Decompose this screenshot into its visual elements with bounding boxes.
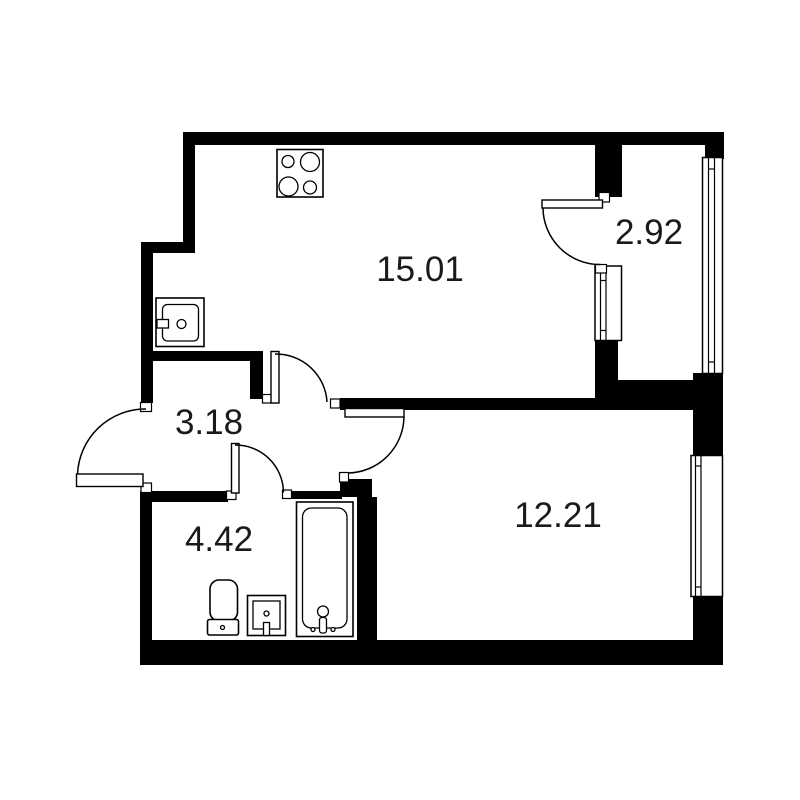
wall-segment-kitchen-hall xyxy=(141,351,253,361)
room-label-kitchen-living: 15.01 xyxy=(376,250,464,289)
room-label-hallway: 3.18 xyxy=(175,403,243,442)
bedroom-door-leaf xyxy=(345,409,404,418)
wall-segment-bedroom-right-upper xyxy=(693,403,723,456)
toilet-icon xyxy=(208,580,239,635)
floor-plan-canvas: 15.01 2.92 3.18 4.42 12.21 xyxy=(0,0,800,800)
balcony-window-sill-jamb xyxy=(596,265,607,274)
balcony-door-leaf xyxy=(542,200,603,208)
bathtub-drain xyxy=(318,606,329,617)
balcony-block-window xyxy=(595,266,622,341)
bathtub-overflow xyxy=(320,618,327,634)
wall-segment-bathroom-right xyxy=(357,497,377,642)
balcony-glazing-window xyxy=(703,158,723,374)
washbasin-pedestal xyxy=(264,623,270,636)
bathroom-door xyxy=(232,444,284,494)
living-room-door-swing-arc xyxy=(275,354,327,402)
stove-burner xyxy=(282,156,294,168)
living-room-door-leaf xyxy=(271,352,279,404)
bedroom-door-swing-arc xyxy=(348,417,404,474)
room-label-balcony: 2.92 xyxy=(615,213,683,252)
bedroom-door-jamb xyxy=(340,473,349,483)
floor-plan-page: 15.01 2.92 3.18 4.42 12.21 xyxy=(0,0,800,800)
balcony-door xyxy=(542,200,603,265)
entrance-door xyxy=(77,409,147,487)
room-label-bedroom: 12.21 xyxy=(514,496,602,535)
stove-burner xyxy=(304,181,317,194)
toilet-bowl xyxy=(210,580,238,621)
toilet-button xyxy=(221,626,225,630)
wall-segment-bathroom-top-right xyxy=(291,491,342,499)
bathtub-tap xyxy=(311,628,315,632)
wall-segment-bottom xyxy=(140,640,723,665)
room-label-bathroom: 4.42 xyxy=(185,520,253,559)
wall-segment-bathroom-top-left xyxy=(140,491,228,502)
entrance-door-jamb xyxy=(141,403,152,412)
bathroom-door-leaf xyxy=(232,444,240,494)
stove-burner xyxy=(301,153,320,172)
entrance-door-swing-arc xyxy=(78,409,147,475)
kitchen-sink-icon xyxy=(156,298,204,347)
wall-segment-balcony-divider-upper xyxy=(595,143,622,197)
washbasin-drain xyxy=(264,611,269,616)
kitchen-sink-tap xyxy=(157,320,169,329)
door-jambs xyxy=(141,193,610,500)
bedroom-window xyxy=(691,456,723,597)
balcony-block-window-frame xyxy=(595,266,622,341)
bedroom-door xyxy=(345,409,404,474)
bathroom-door-swing-arc xyxy=(235,445,284,493)
wall-segment-left-upper xyxy=(183,132,195,253)
wall-segment-top xyxy=(183,132,724,145)
wall-segment-left-mid xyxy=(141,242,153,403)
wall-segment-hall-stub xyxy=(250,351,263,399)
wall-segment-bathroom-left xyxy=(140,492,152,642)
entrance-door-leaf xyxy=(77,474,144,487)
stove-burner xyxy=(279,177,298,196)
wall-segment-glazing-bottom-corner xyxy=(693,373,723,404)
living-room-door xyxy=(271,352,327,404)
balcony-glazing-frame xyxy=(703,158,723,374)
bathtub-tap xyxy=(331,628,335,632)
washbasin-icon xyxy=(248,596,286,636)
wall-segment-balcony-divider-lower xyxy=(595,339,618,384)
bathtub-icon xyxy=(297,502,354,637)
living-room-door-jamb xyxy=(331,399,341,408)
kitchen-sink-drain xyxy=(177,320,186,329)
stove-icon xyxy=(277,150,323,198)
balcony-door-swing-arc xyxy=(543,208,601,265)
